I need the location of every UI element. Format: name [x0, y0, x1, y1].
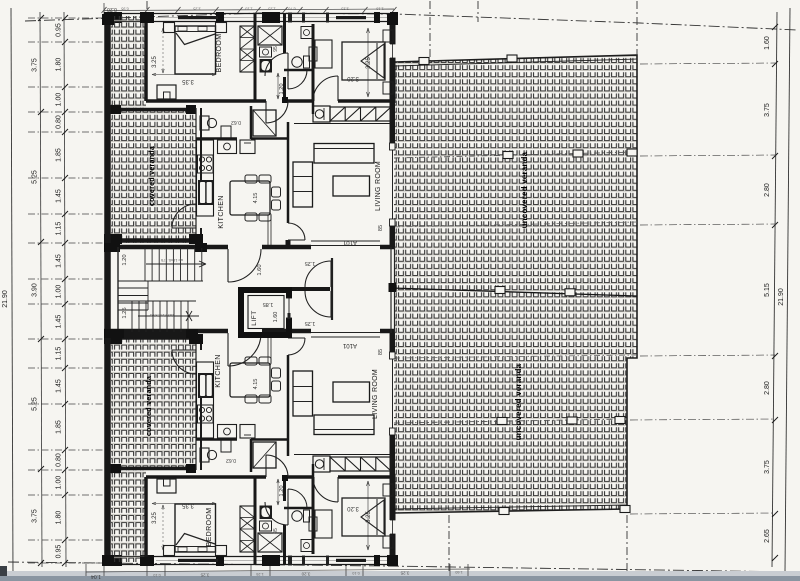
svg-text:3.35: 3.35 [182, 502, 194, 508]
svg-text:3.75: 3.75 [764, 103, 771, 117]
svg-text:1.25: 1.25 [305, 320, 316, 326]
svg-text:3.25: 3.25 [200, 573, 209, 578]
svg-text:3.25: 3.25 [366, 511, 372, 523]
svg-text:1.25: 1.25 [122, 307, 128, 318]
svg-text:1.20: 1.20 [122, 254, 128, 265]
svg-text:1.10: 1.10 [245, 7, 252, 11]
svg-text:0.95: 0.95 [121, 7, 128, 11]
svg-text:KITCHEN: KITCHEN [215, 354, 222, 388]
svg-text:0.80: 0.80 [56, 453, 63, 467]
svg-text:21.90: 21.90 [2, 290, 9, 308]
svg-text:0.62: 0.62 [231, 119, 241, 125]
svg-text:1.04: 1.04 [91, 573, 101, 579]
svg-text:1.45: 1.45 [56, 315, 63, 329]
svg-text:2.80: 2.80 [764, 381, 771, 395]
svg-text:0.70: 0.70 [288, 7, 295, 11]
svg-text:3.25: 3.25 [193, 7, 200, 11]
svg-text:1.45: 1.45 [56, 189, 63, 203]
svg-text:1.25: 1.25 [268, 7, 275, 11]
svg-text:3.20: 3.20 [347, 75, 359, 81]
svg-text:1.25: 1.25 [256, 572, 263, 576]
svg-text:1.10: 1.10 [376, 7, 383, 11]
svg-text:2.65: 2.65 [764, 529, 771, 543]
svg-text:0.95: 0.95 [56, 545, 63, 559]
svg-text:1.85: 1.85 [263, 301, 274, 307]
svg-text:A101: A101 [342, 342, 357, 348]
svg-text:1.00: 1.00 [56, 285, 63, 299]
svg-text:BEDROOM: BEDROOM [206, 508, 213, 547]
svg-text:1.60: 1.60 [764, 36, 771, 50]
svg-text:0.10: 0.10 [153, 573, 160, 577]
svg-text:85: 85 [378, 225, 384, 231]
svg-text:0.95: 0.95 [56, 23, 63, 37]
svg-text:1.80: 1.80 [56, 58, 63, 72]
svg-text:4.15: 4.15 [253, 193, 259, 204]
svg-text:1.60: 1.60 [273, 312, 279, 323]
svg-text:1.85: 1.85 [56, 420, 63, 434]
svg-text:3.20: 3.20 [347, 505, 359, 511]
svg-text:18x0.29=3.05: 18x0.29=3.05 [149, 313, 174, 318]
svg-text:covered veranda: covered veranda [147, 145, 156, 206]
svg-text:3.20: 3.20 [301, 572, 310, 577]
svg-text:1.85: 1.85 [56, 148, 63, 162]
svg-text:3.25: 3.25 [366, 57, 372, 69]
svg-text:1.15: 1.15 [56, 347, 63, 361]
svg-text:covered veranda: covered veranda [144, 375, 153, 436]
svg-text:1.80: 1.80 [56, 511, 63, 525]
svg-text:LIVING ROOM: LIVING ROOM [372, 369, 379, 419]
svg-text:1.20: 1.20 [279, 485, 285, 496]
svg-text:3.75: 3.75 [32, 58, 39, 72]
svg-text:5.15: 5.15 [764, 283, 771, 297]
svg-text:A101: A101 [342, 239, 357, 245]
svg-text:0.80: 0.80 [56, 115, 63, 129]
svg-text:0.10: 0.10 [352, 571, 359, 575]
svg-text:95: 95 [273, 46, 279, 52]
svg-text:5.25: 5.25 [32, 170, 39, 184]
svg-text:uncovered veranda: uncovered veranda [520, 151, 529, 228]
svg-text:21.90: 21.90 [778, 288, 785, 306]
svg-text:3.75: 3.75 [32, 509, 39, 523]
svg-text:LIFT: LIFT [251, 310, 258, 325]
svg-text:BEDROOM: BEDROOM [216, 34, 223, 73]
svg-text:uncovered veranda: uncovered veranda [514, 363, 523, 440]
svg-text:3.25: 3.25 [400, 571, 409, 576]
svg-text:LIVING ROOM: LIVING ROOM [375, 161, 382, 211]
svg-text:3.25: 3.25 [341, 7, 348, 11]
svg-text:1.45: 1.45 [56, 379, 63, 393]
svg-text:3.25: 3.25 [152, 56, 158, 68]
svg-text:up 18x0.175: up 18x0.175 [160, 258, 183, 263]
svg-text:2.80: 2.80 [764, 183, 771, 197]
svg-text:4.15: 4.15 [253, 379, 259, 390]
svg-text:85: 85 [378, 349, 384, 355]
svg-text:0.20: 0.20 [107, 6, 117, 12]
svg-text:1.60: 1.60 [455, 570, 462, 574]
svg-text:95: 95 [273, 528, 279, 534]
svg-text:3.75: 3.75 [764, 460, 771, 474]
svg-text:1.45: 1.45 [56, 254, 63, 268]
svg-text:3.90: 3.90 [32, 283, 39, 297]
svg-text:0.62: 0.62 [226, 457, 236, 463]
svg-text:3.25: 3.25 [152, 512, 158, 524]
svg-text:1.60: 1.60 [257, 264, 263, 275]
svg-text:1.20: 1.20 [279, 83, 285, 94]
svg-text:1.15: 1.15 [56, 222, 63, 236]
svg-text:3.35: 3.35 [182, 78, 194, 84]
svg-text:1.00: 1.00 [56, 93, 63, 107]
svg-text:KITCHEN: KITCHEN [218, 195, 225, 229]
svg-text:1.25: 1.25 [305, 260, 316, 266]
svg-text:1.00: 1.00 [56, 476, 63, 490]
